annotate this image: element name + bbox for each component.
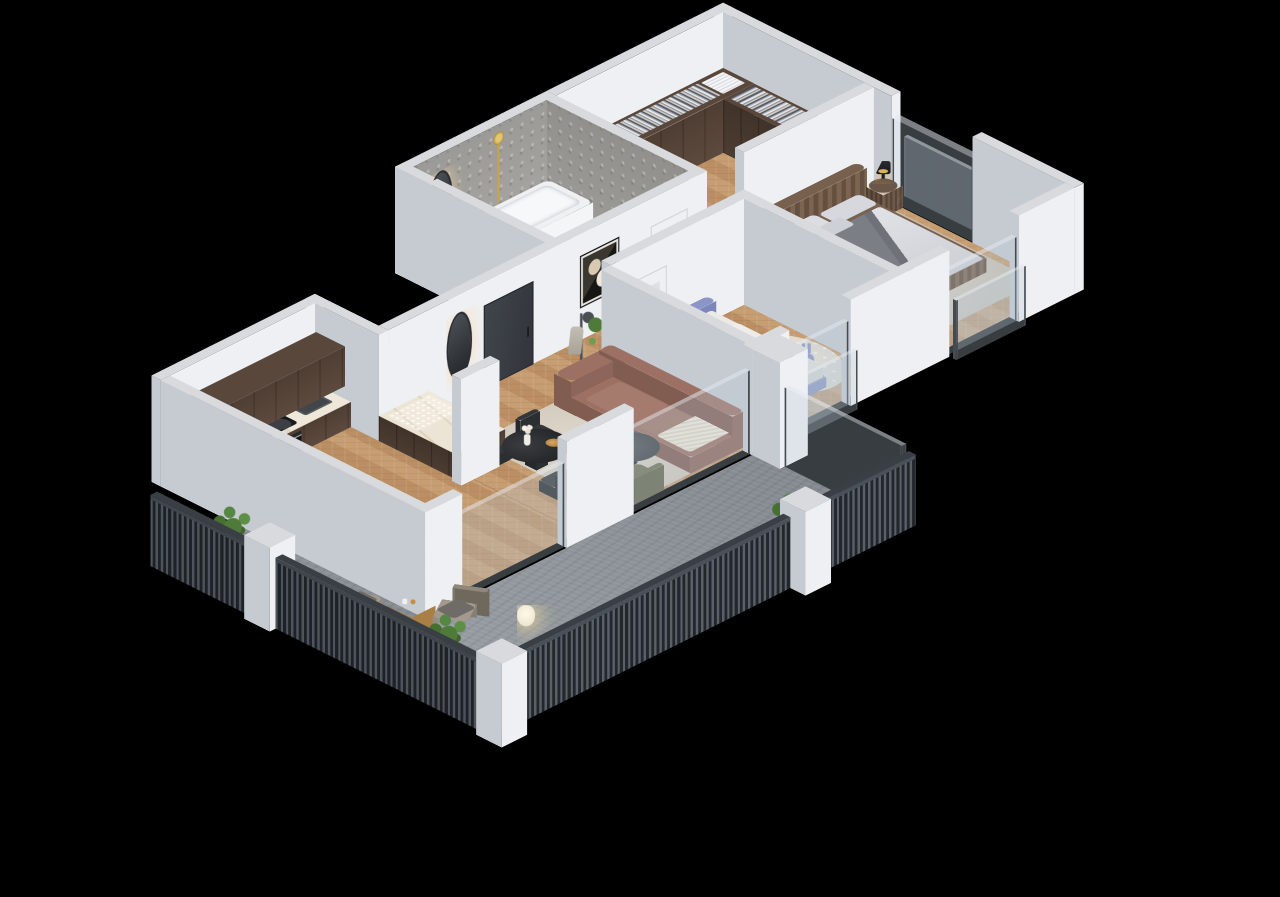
juliet-glass-bedroom — [953, 324, 1026, 361]
kitchen-end-panel-left-face — [452, 375, 461, 486]
balcony-post-front-face — [805, 499, 831, 596]
balcony-post-left-face — [476, 651, 502, 748]
wall-bathroom-back-left-face — [395, 167, 404, 278]
balcony-pier-left-face — [752, 349, 780, 469]
balcony-post — [476, 722, 527, 748]
balcony-post-left-face — [244, 535, 270, 632]
shower-column — [486, 125, 512, 209]
balcony-railing-front — [485, 522, 915, 737]
balcony-post-front-face — [502, 651, 528, 748]
kitchen-end-panel-front-face — [461, 360, 499, 486]
render-canvas: { "meta": { "type": "3d-isometric-floor-… — [0, 0, 1280, 897]
wall-right-lower-front-face — [1075, 183, 1084, 294]
wall-kitchen-back-left-face — [151, 375, 160, 486]
